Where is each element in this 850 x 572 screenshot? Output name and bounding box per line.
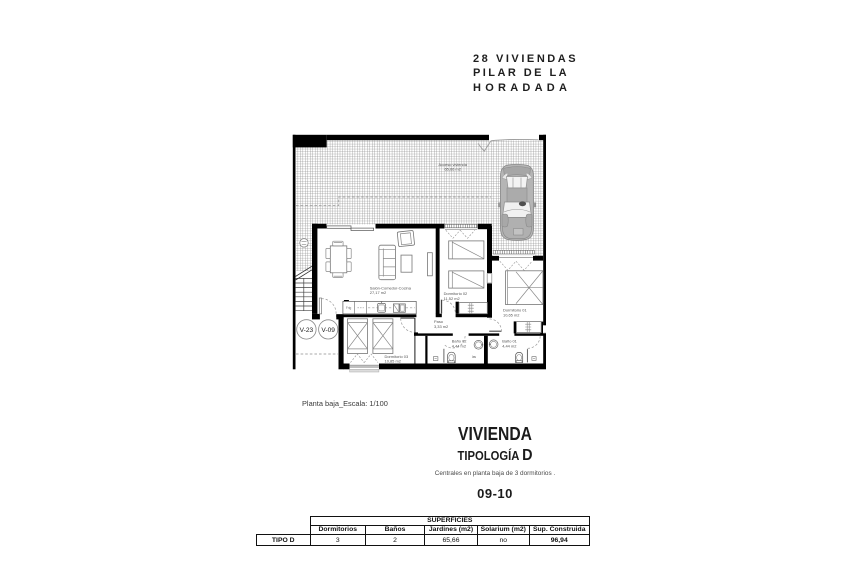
svg-text:11,52 m2: 11,52 m2 bbox=[444, 296, 460, 301]
svg-text:3,33 m2: 3,33 m2 bbox=[434, 324, 448, 329]
svg-text:lav: lav bbox=[472, 355, 476, 359]
svg-text:65,66 m2: 65,66 m2 bbox=[444, 167, 460, 172]
svg-text:27,17 m2: 27,17 m2 bbox=[370, 290, 386, 295]
svg-text:4,44 m2: 4,44 m2 bbox=[452, 344, 466, 349]
svg-text:V-09: V-09 bbox=[321, 327, 335, 334]
svg-text:Frig: Frig bbox=[346, 306, 352, 310]
svg-text:10,65 m2: 10,65 m2 bbox=[503, 312, 519, 317]
svg-text:4,44 m2: 4,44 m2 bbox=[502, 344, 516, 349]
svg-text:V-23: V-23 bbox=[300, 327, 314, 334]
svg-text:10,85 m2: 10,85 m2 bbox=[385, 358, 401, 363]
